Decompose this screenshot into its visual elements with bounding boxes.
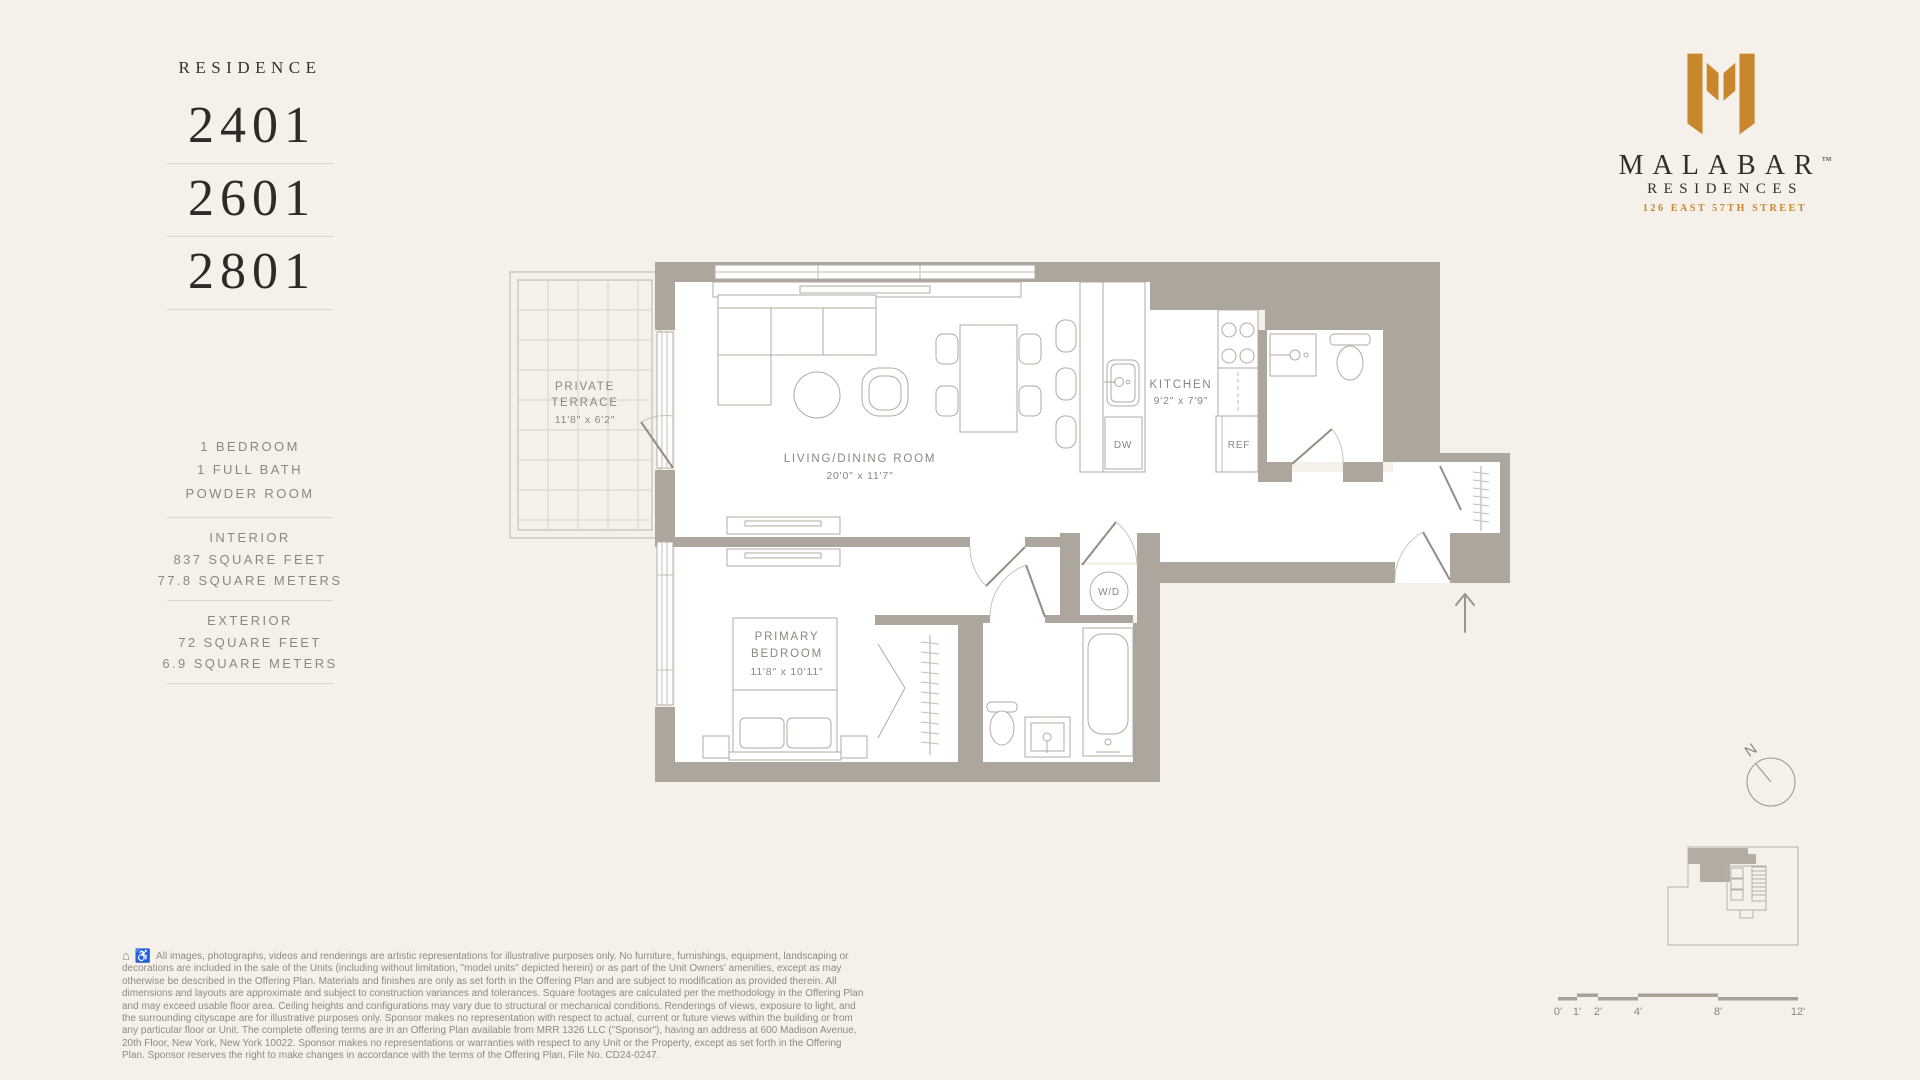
counter-stool (1056, 368, 1076, 400)
brand-name-text: MALABAR (1619, 150, 1822, 181)
coffee-table (794, 372, 840, 418)
pillow (787, 718, 831, 748)
sofa (718, 295, 876, 355)
scale-bar: 0' 1' 2' 4' 8' 12' (1550, 985, 1810, 1025)
bedroom-label: PRIMARY (755, 631, 820, 643)
brand-address: 126 EAST 57TH STREET (1605, 203, 1845, 214)
interior-sqft: 837 SQUARE FEET (137, 552, 363, 567)
key-plan (1660, 840, 1810, 952)
bedroom-dimensions: 11'8" x 10'11" (750, 666, 823, 678)
compass-north-label: N (1742, 740, 1761, 760)
bedroom-label: BEDROOM (751, 648, 823, 660)
stat-baths: 1 FULL BATH (137, 462, 363, 477)
unit-number-2401: 2401 (167, 98, 337, 154)
exterior-sqft: 72 SQUARE FEET (137, 635, 363, 650)
dining-chair (936, 386, 958, 416)
divider (167, 600, 333, 601)
trademark-symbol: ™ (1822, 156, 1832, 167)
kitchen-dimensions: 9'2" x 7'9" (1154, 395, 1209, 407)
key-plan-stairs (1752, 867, 1766, 901)
nightstand (703, 736, 729, 758)
washer-dryer-label: W/D (1098, 587, 1120, 598)
kitchen-peninsula (1080, 282, 1103, 472)
headboard (729, 752, 841, 760)
scale-tick: 1' (1573, 1006, 1581, 1018)
interior-sqm: 77.8 SQUARE METERS (137, 573, 363, 588)
scale-tick: 0' (1554, 1006, 1562, 1018)
unit-number-2801: 2801 (167, 244, 337, 300)
malabar-logo-icon (1677, 52, 1765, 136)
divider (167, 163, 333, 164)
dining-chair (1019, 334, 1041, 364)
dishwasher-label: DW (1114, 440, 1132, 451)
sofa-chaise (718, 355, 771, 405)
equal-housing-icon: ⌂ (122, 948, 130, 963)
divider (167, 309, 333, 310)
dining-table (960, 325, 1017, 432)
terrace-label: PRIVATE (555, 381, 615, 393)
key-plan-unit-highlight (1688, 848, 1756, 882)
floor-plan: DW REF (500, 250, 1520, 800)
scale-tick: 2' (1594, 1006, 1602, 1018)
cooktop (1218, 310, 1258, 368)
disclaimer-text: All images, photographs, videos and rend… (122, 951, 863, 1061)
refrigerator-label: REF (1228, 440, 1250, 451)
interior-title: INTERIOR (137, 530, 363, 545)
scale-tick: 12' (1791, 1006, 1805, 1018)
entry-arrow-icon (1456, 594, 1474, 632)
scale-tick: 8' (1714, 1006, 1722, 1018)
kitchen-label: KITCHEN (1149, 379, 1212, 391)
living-room-dimensions: 20'0" x 11'7" (826, 470, 893, 482)
terrace-label: TERRACE (551, 397, 619, 409)
key-plan-elevators (1731, 868, 1743, 900)
stat-powderroom: POWDER ROOM (137, 486, 363, 501)
powder-toilet (1330, 334, 1370, 345)
dining-chair (936, 334, 958, 364)
brand-subtitle: RESIDENCES (1605, 181, 1845, 198)
terrace-dimensions: 11'8" x 6'2" (555, 414, 616, 426)
floorplan-sheet: { "residence": { "label": "RESIDENCE", "… (0, 0, 1920, 1080)
pillow (740, 718, 784, 748)
nightstand (841, 736, 867, 758)
dining-chair (1019, 386, 1041, 416)
bathtub (1083, 628, 1133, 756)
counter-stool (1056, 320, 1076, 352)
accessibility-icon: ♿ (135, 948, 151, 963)
divider (167, 683, 333, 684)
divider (167, 236, 333, 237)
legal-disclaimer: ⌂♿All images, photographs, videos and re… (122, 950, 866, 1063)
divider (167, 517, 333, 518)
brand-name: MALABAR™ (1605, 150, 1845, 182)
stat-bedrooms: 1 BEDROOM (137, 439, 363, 454)
exterior-sqm: 6.9 SQUARE METERS (137, 656, 363, 671)
exterior-title: EXTERIOR (137, 613, 363, 628)
residence-heading: RESIDENCE (167, 58, 333, 78)
compass-icon: N (1733, 738, 1813, 818)
scale-tick: 4' (1634, 1006, 1642, 1018)
unit-number-2601: 2601 (167, 171, 337, 227)
counter-stool (1056, 416, 1076, 448)
living-room-label: LIVING/DINING ROOM (784, 453, 937, 465)
